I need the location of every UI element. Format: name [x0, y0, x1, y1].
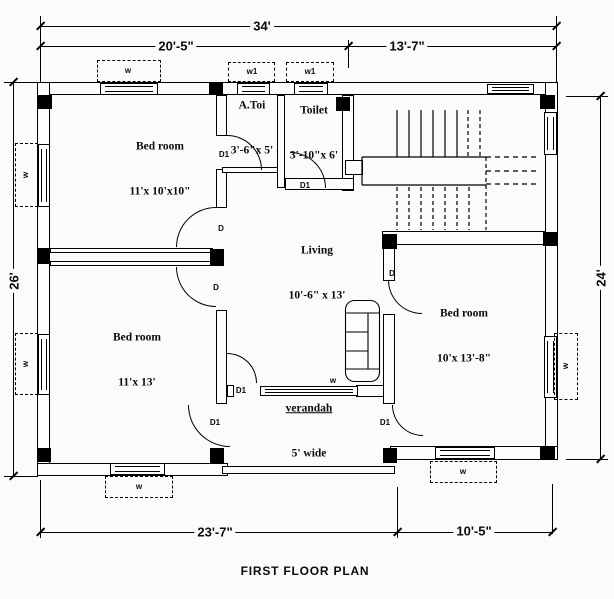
room-label-bedroom-top-left: Bed room 11'x 10'x10" — [129, 109, 190, 229]
dimension-label-bottom-right: 10'-5" — [453, 525, 494, 538]
staircase — [362, 110, 539, 230]
door-label-toilet: D1 — [300, 182, 310, 190]
dimension-line-top-spans — [40, 46, 556, 47]
sofa — [346, 301, 380, 382]
extension-line — [566, 96, 608, 97]
extension-line — [4, 82, 38, 83]
door-label-left-verandah: D1 — [210, 419, 220, 427]
room-size: 3'-10"x 6' — [290, 148, 338, 163]
room-size: 5' wide — [286, 446, 333, 461]
door-label-top-bedroom: D — [218, 225, 224, 233]
room-label-bedroom-bottom-left: Bed room 11'x 13' — [113, 300, 161, 420]
door-label-atoi: D1 — [219, 151, 229, 159]
window-label-left-bottom: w — [22, 361, 30, 367]
dimension-label-bottom-left: 23'-7" — [194, 526, 235, 539]
extension-line — [566, 459, 608, 460]
room-label-verandah: verandah 5' wide — [286, 371, 333, 491]
window-label-bottom-right: w — [460, 468, 466, 476]
dimension-line-top-total — [40, 26, 556, 27]
window-label-atoi: w1 — [247, 68, 258, 76]
window-label-left-top: w — [22, 172, 30, 178]
room-label-bedroom-right: Bed room 10'x 13'-8" — [437, 276, 491, 396]
dimension-label-top-left: 20'-5" — [155, 40, 196, 53]
door-label-bottom-bedroom: D — [213, 284, 219, 292]
room-size: 3'-6"x 5' — [231, 143, 273, 158]
window-label-living-verandah: w — [330, 377, 336, 385]
door-label-living-verandah: D1 — [236, 387, 246, 395]
room-name: A.Toi — [231, 98, 273, 113]
extension-line — [4, 476, 38, 477]
floor-plan: 34' 20'-5" 13'-7" 26' 24' 23'-7" 10'-5" … — [0, 0, 614, 599]
dimension-label-top-total: 34' — [250, 20, 274, 33]
room-size: 10'x 13'-8" — [437, 351, 491, 366]
room-name: Bed room — [113, 330, 161, 345]
room-name: Bed room — [129, 139, 190, 154]
dimension-label-top-right: 13'-7" — [386, 40, 427, 53]
room-name: Bed room — [437, 306, 491, 321]
room-size: 10'-6" x 13' — [289, 288, 346, 303]
dimension-label-left: 26' — [8, 269, 21, 293]
window-label-toilet: w1 — [305, 68, 316, 76]
window-label-bottom-left: w — [136, 483, 142, 491]
room-size: 11'x 10'x10" — [129, 184, 190, 199]
page-title: FIRST FLOOR PLAN — [241, 565, 370, 577]
extension-line — [552, 484, 553, 534]
dimension-label-right: 24' — [595, 266, 608, 290]
window-label-top-bedroom: w — [125, 67, 131, 75]
room-label-living: Living 10'-6" x 13' — [289, 213, 346, 333]
room-name: Living — [289, 243, 346, 258]
room-label-toilet: Toilet 3'-10"x 6' — [290, 73, 338, 193]
door-label-right-verandah: D1 — [380, 419, 390, 427]
room-label-atoi: A.Toi 3'-6"x 5' — [231, 68, 273, 188]
door-label-right-bedroom: D — [389, 270, 395, 278]
room-name: verandah — [286, 401, 333, 416]
window-label-right-bedroom: w — [562, 363, 570, 369]
room-size: 11'x 13' — [113, 375, 161, 390]
room-name: Toilet — [290, 103, 338, 118]
